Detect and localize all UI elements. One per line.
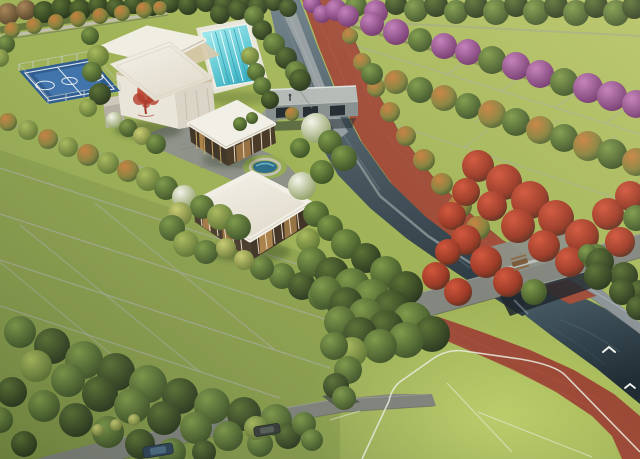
scene-canvas [0, 0, 640, 459]
light-overlay [0, 0, 640, 459]
aerial-site-render [0, 0, 640, 459]
